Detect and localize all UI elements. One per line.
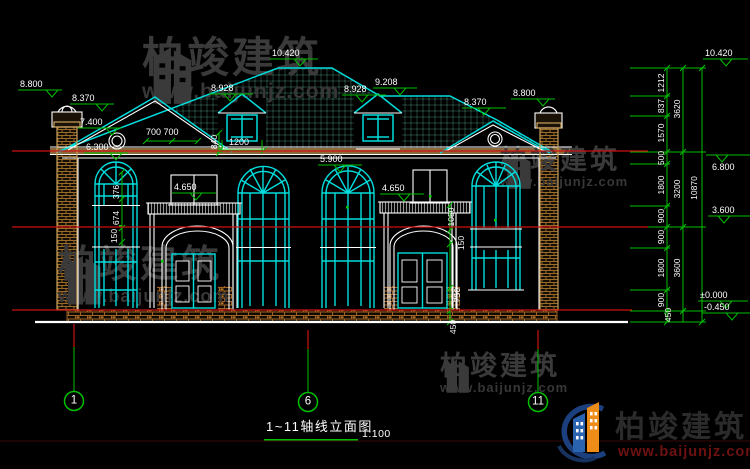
dim-750: 750 bbox=[453, 288, 462, 302]
dim-900-b: 900 bbox=[657, 230, 666, 244]
elev-8800-right: 8.800 bbox=[513, 89, 536, 98]
cad-elevation-canvas: 柏竣建筑 www.baijunjz.com 柏竣建筑 www.baijunjz.… bbox=[0, 0, 750, 469]
dim-1570: 1570 bbox=[657, 124, 666, 143]
dim-1800-b: 1800 bbox=[657, 259, 666, 278]
elev-0450-right: -0.450 bbox=[704, 303, 730, 312]
brand-logo-cn: 柏竣建筑 bbox=[615, 410, 747, 444]
dim-450-right: 450 bbox=[664, 308, 673, 322]
elev-10420-ridge: 10.420 bbox=[272, 49, 300, 58]
elev-9208: 9.208 bbox=[375, 78, 398, 87]
elev-6800-right: 6.800 bbox=[712, 163, 735, 172]
dim-1212: 1212 bbox=[657, 74, 666, 93]
dim-150-right: 150 bbox=[457, 236, 466, 250]
dim-900-a: 900 bbox=[657, 209, 666, 223]
elev-8370-right: 8.370 bbox=[464, 98, 487, 107]
elev-6300-left: 6.300 bbox=[86, 143, 109, 152]
elev-4650-left: 4.650 bbox=[174, 183, 197, 192]
elev-8928-right: 8.928 bbox=[344, 85, 367, 94]
elev-3600-right: 3.600 bbox=[712, 206, 735, 215]
dim-10870: 10870 bbox=[690, 176, 699, 200]
axis-1: 1 bbox=[71, 395, 77, 407]
dim-376: 376 bbox=[112, 185, 121, 199]
dim-150-left: 150 bbox=[110, 229, 119, 243]
elev-8928-left: 8.928 bbox=[211, 84, 234, 93]
dim-1800-a: 1800 bbox=[657, 176, 666, 195]
dim-840: 840 bbox=[210, 135, 219, 149]
brand-logo-icon: 柏竣建筑 www.baijunjz.com bbox=[543, 396, 750, 468]
elev-8370-left: 8.370 bbox=[72, 94, 95, 103]
dim-674: 674 bbox=[112, 211, 121, 225]
dim-1200: 1200 bbox=[229, 138, 249, 147]
elev-4650-right: 4.650 bbox=[382, 184, 405, 193]
brand-logo-url: www.baijunjz.com bbox=[617, 444, 750, 460]
elev-5900: 5.900 bbox=[320, 155, 343, 164]
dim-700-700: 700 700 bbox=[146, 128, 179, 137]
elev-7400-left: 7.400 bbox=[80, 118, 103, 127]
drawing-title: 1~11轴线立面图 bbox=[266, 420, 373, 433]
axis-6: 6 bbox=[305, 396, 311, 408]
dim-3620: 3620 bbox=[673, 100, 682, 119]
dim-3600: 3600 bbox=[673, 259, 682, 278]
dim-450-door: 450 bbox=[449, 320, 458, 334]
dim-900-c: 900 bbox=[657, 293, 666, 307]
dim-837: 837 bbox=[657, 99, 666, 113]
brand-logo: 柏竣建筑 www.baijunjz.com bbox=[543, 396, 750, 468]
dim-500: 500 bbox=[657, 151, 666, 165]
drawing-scale: 1:100 bbox=[362, 429, 391, 440]
elev-10420-right: 10.420 bbox=[705, 49, 733, 58]
dim-3200: 3200 bbox=[673, 180, 682, 199]
elev-0000-right: ±0.000 bbox=[700, 291, 727, 300]
elev-8800-left: 8.800 bbox=[20, 80, 43, 89]
dim-1050: 1050 bbox=[447, 208, 456, 227]
